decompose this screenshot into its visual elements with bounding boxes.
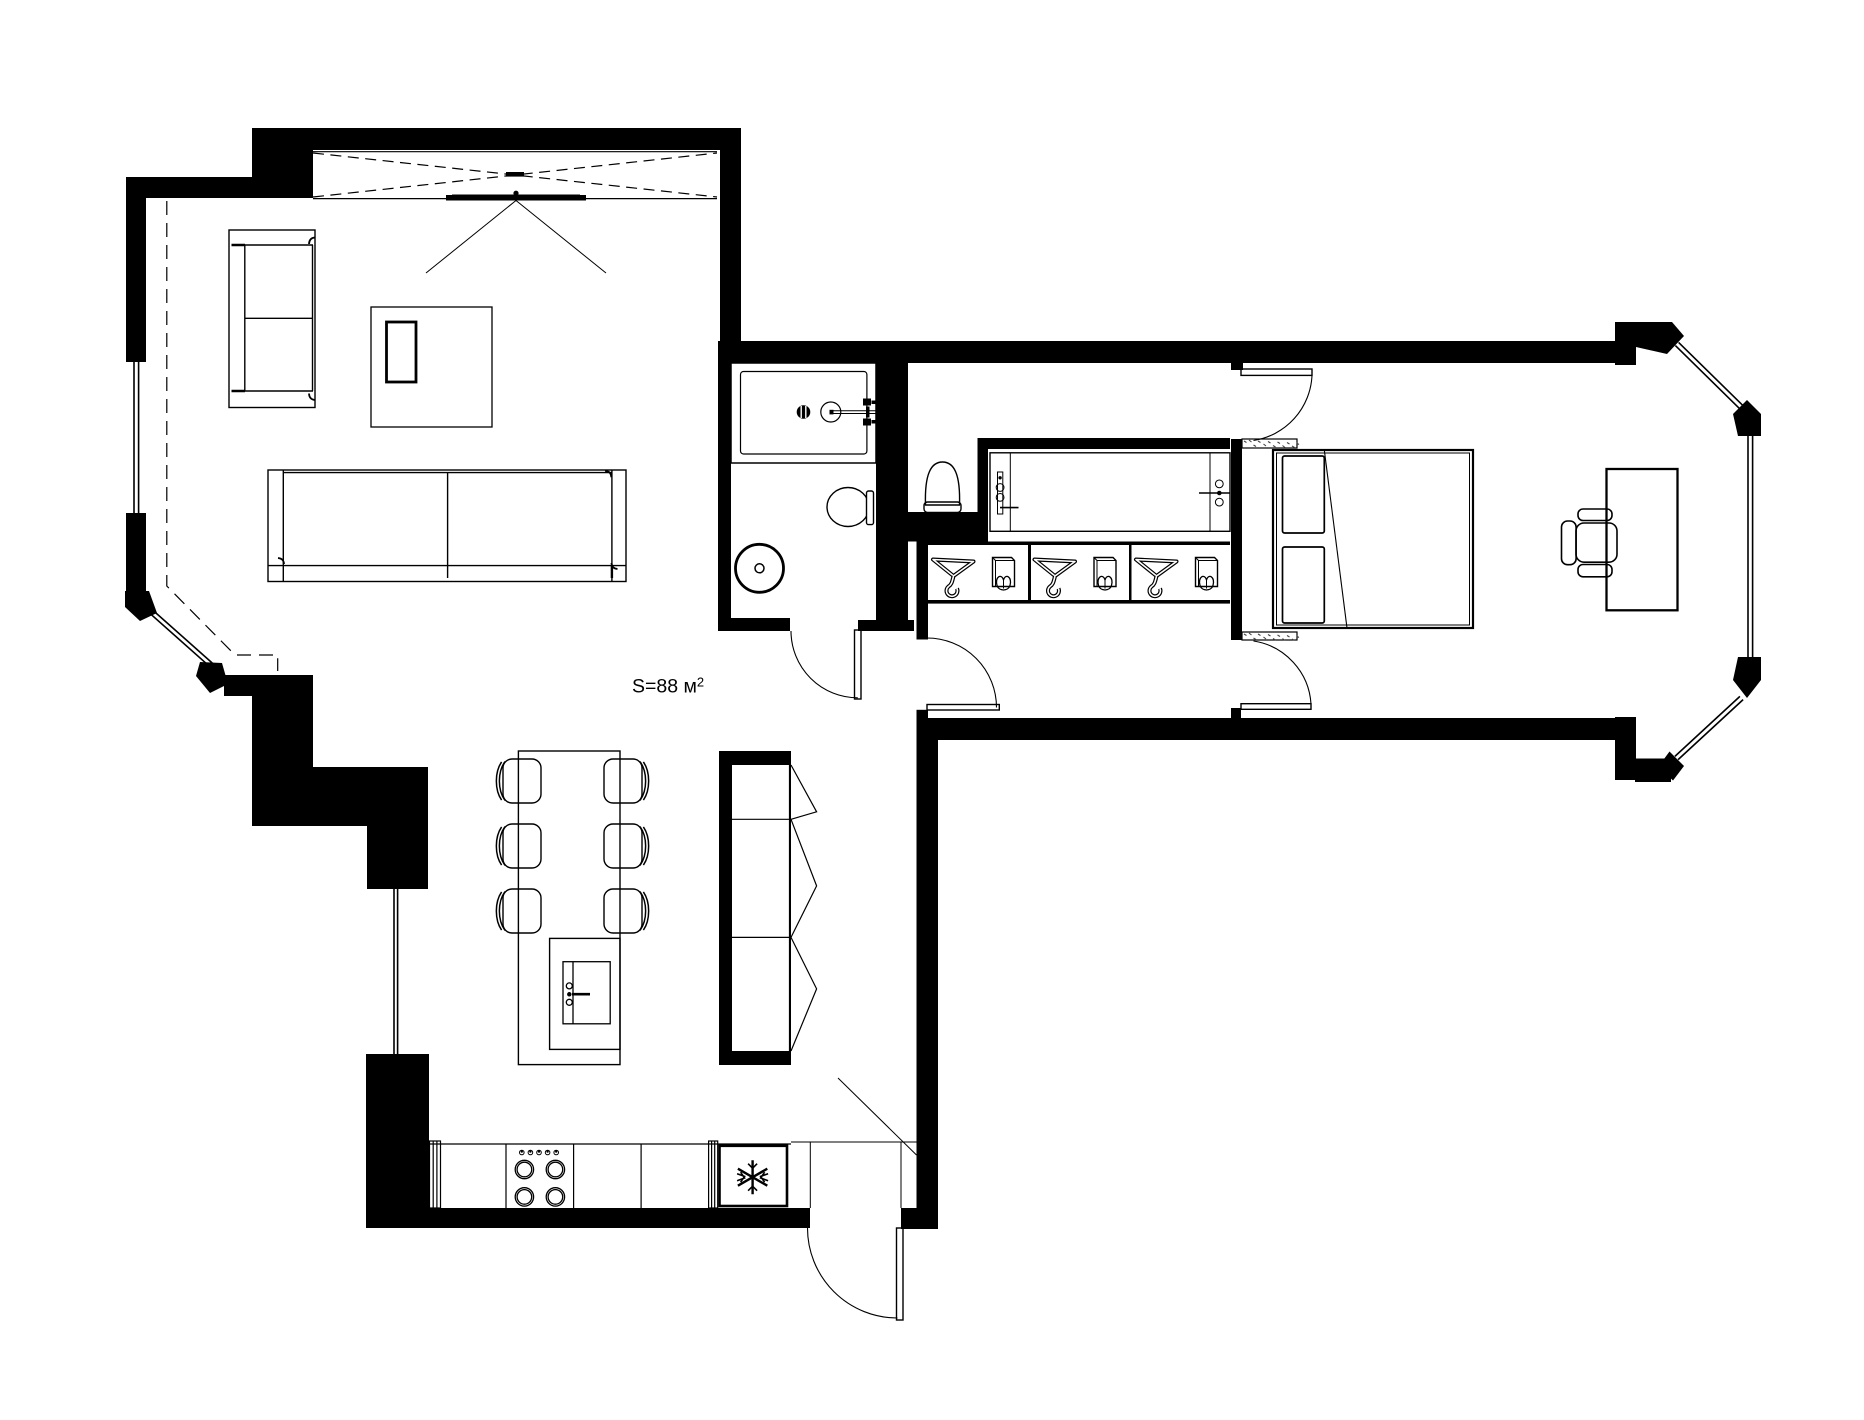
svg-text:S=88 м2: S=88 м2: [632, 675, 704, 698]
